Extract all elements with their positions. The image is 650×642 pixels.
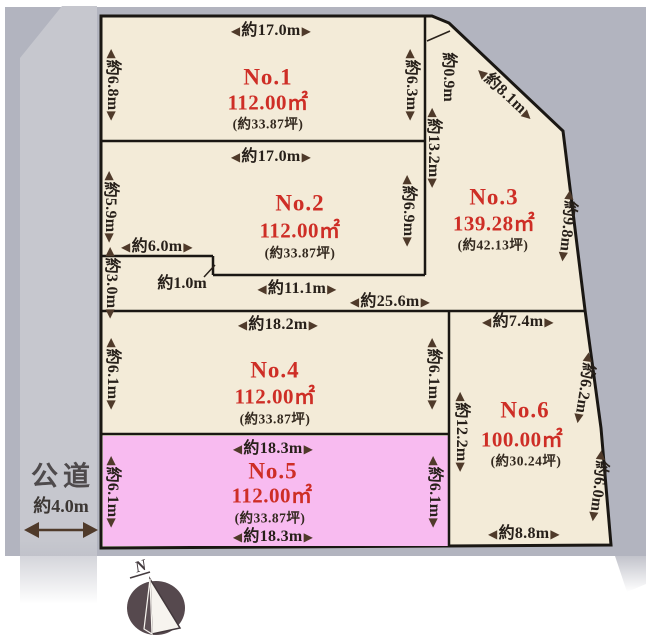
arrow-left-icon: ◀ xyxy=(238,319,248,331)
road-name: 公道 xyxy=(31,464,95,491)
measure-mid-step-offset: 約1.0m xyxy=(157,276,206,292)
plot-no5-tsubo: (約33.87坪) xyxy=(235,511,306,525)
arrow-up-icon: ◀ xyxy=(428,456,440,466)
measure-no1-right: ◀約6.3m▶ xyxy=(403,49,419,121)
measure-no1-top: ◀約17.0m▶ xyxy=(231,23,311,39)
arrow-down-icon: ▶ xyxy=(428,518,440,528)
measure-text: 約6.9m xyxy=(400,186,416,237)
arrow-down-icon: ▶ xyxy=(106,518,118,528)
plot-no2-name: No.2 xyxy=(275,192,324,215)
plot-no3-name: No.3 xyxy=(469,186,518,209)
arrow-down-icon: ▶ xyxy=(402,237,414,247)
measure-text: 約6.0m xyxy=(132,239,183,255)
measure-text: 約7.4m xyxy=(493,314,544,330)
arrow-down-icon: ▶ xyxy=(427,179,439,189)
plot-no3-tsubo: (約42.13坪) xyxy=(458,238,529,252)
measure-text: 約6.1m xyxy=(425,349,441,400)
measure-mid-total-width: ◀約25.6m▶ xyxy=(350,294,430,310)
measure-text: 約17.0m xyxy=(241,23,300,39)
arrow-down-icon: ▶ xyxy=(427,400,439,410)
measure-no4-top: ◀約18.2m▶ xyxy=(238,317,318,333)
arrow-down-icon: ▶ xyxy=(104,233,116,243)
measure-text: 約13.2m xyxy=(425,118,441,177)
measure-text: 約11.1m xyxy=(268,281,326,297)
plot-no2-tsubo: (約33.87坪) xyxy=(265,246,336,260)
arrow-left-icon: ◀ xyxy=(121,241,131,253)
plot-no4-tsubo: (約33.87坪) xyxy=(240,412,311,426)
arrow-left-icon: ◀ xyxy=(231,151,241,163)
plot-no2-area: 112.00㎡ xyxy=(259,221,340,242)
measure-no5-top: ◀約18.3m▶ xyxy=(233,441,313,457)
measure-text: 約18.3m xyxy=(243,529,302,545)
plot-no3-area: 139.28㎡ xyxy=(453,214,535,235)
measure-no6-top: ◀約7.4m▶ xyxy=(482,314,554,330)
arrow-left-icon: ◀ xyxy=(231,25,241,37)
arrow-up-icon: ◀ xyxy=(595,450,608,461)
measure-text: 約18.3m xyxy=(243,441,302,457)
arrow-down-icon: ▶ xyxy=(572,413,585,424)
arrow-right-icon: ▶ xyxy=(183,241,193,253)
measure-no1-left: ◀約6.8m▶ xyxy=(104,49,120,121)
plot-no4-name: No.4 xyxy=(250,359,299,382)
arrow-up-icon: ◀ xyxy=(427,338,439,348)
arrow-up-icon: ◀ xyxy=(427,108,439,118)
land-plot-map: ◀約17.0m▶ ◀約6.8m▶ ◀約6.3m▶ No.1 112.00㎡ (約… xyxy=(0,0,650,642)
arrow-up-icon: ◀ xyxy=(455,392,467,402)
measure-mid-left-width: ◀約6.0m▶ xyxy=(121,239,193,255)
arrow-up-icon: ◀ xyxy=(402,175,414,185)
measure-text: 約12.2m xyxy=(453,402,469,461)
measure-no2-top: ◀約17.0m▶ xyxy=(231,149,311,165)
measure-text: 約3.0m xyxy=(103,258,119,309)
arrow-up-icon: ◀ xyxy=(405,49,417,59)
arrow-down-icon: ▶ xyxy=(106,400,118,410)
measure-no3-top-edge: 約0.9m xyxy=(440,52,456,101)
arrow-right-icon: ▶ xyxy=(550,528,560,540)
measure-text: 約17.0m xyxy=(241,149,300,165)
measure-no3-left: ◀約13.2m▶ xyxy=(425,108,441,188)
road-width: 約4.0m xyxy=(33,497,89,515)
arrow-right-icon: ▶ xyxy=(421,296,431,308)
arrow-down-icon: ▶ xyxy=(588,511,601,522)
measure-no4-left: ◀約6.1m▶ xyxy=(104,338,120,410)
measure-no5-bottom: ◀約18.3m▶ xyxy=(233,529,313,545)
measure-mid-step-height: ◀約3.0m▶ xyxy=(103,247,119,319)
measure-no2-right: ◀約6.9m▶ xyxy=(400,175,416,247)
arrow-up-icon: ◀ xyxy=(582,352,595,363)
arrow-left-icon: ◀ xyxy=(488,528,498,540)
measure-no6-left: ◀約12.2m▶ xyxy=(453,392,469,472)
compass xyxy=(127,572,185,635)
arrow-up-icon: ◀ xyxy=(104,171,116,181)
measure-no5-left: ◀約6.1m▶ xyxy=(104,456,120,528)
arrow-down-icon: ▶ xyxy=(455,463,467,473)
arrow-right-icon: ▶ xyxy=(302,151,312,163)
measure-no5-right: ◀約6.1m▶ xyxy=(426,456,442,528)
arrow-up-icon: ◀ xyxy=(105,247,117,257)
measure-no2-left: ◀約5.9m▶ xyxy=(102,171,118,243)
arrow-down-icon: ▶ xyxy=(557,252,570,263)
arrow-right-icon: ▶ xyxy=(304,443,314,455)
arrow-right-icon: ▶ xyxy=(302,25,312,37)
arrow-down-icon: ▶ xyxy=(405,111,417,121)
arrow-down-icon: ▶ xyxy=(106,111,118,121)
plot-no6-area: 100.00㎡ xyxy=(481,430,563,451)
arrow-up-icon: ◀ xyxy=(106,456,118,466)
arrow-right-icon: ▶ xyxy=(327,283,337,295)
arrow-right-icon: ▶ xyxy=(304,531,314,543)
measure-text: 約25.6m xyxy=(360,294,419,310)
measure-text: 約5.9m xyxy=(102,182,118,233)
arrow-left-icon: ◀ xyxy=(233,531,243,543)
arrow-down-icon: ▶ xyxy=(105,309,117,319)
road-area-fade xyxy=(20,540,97,604)
measure-text: 約6.1m xyxy=(426,467,442,518)
measure-text: 約6.1m xyxy=(104,349,120,400)
measure-text: 約6.1m xyxy=(104,467,120,518)
plot-no4-area: 112.00㎡ xyxy=(234,387,315,408)
plot-no1-name: No.1 xyxy=(243,66,292,89)
measure-no4-right: ◀約6.1m▶ xyxy=(425,338,441,410)
measure-text: 約6.3m xyxy=(403,60,419,111)
measure-mid-inner-width: ◀約11.1m▶ xyxy=(257,281,336,297)
measure-text: 約18.2m xyxy=(248,317,307,333)
plot-no5-name: No.5 xyxy=(248,460,297,483)
arrow-up-icon: ◀ xyxy=(564,190,577,201)
arrow-up-icon: ◀ xyxy=(106,338,118,348)
arrow-left-icon: ◀ xyxy=(350,296,360,308)
arrow-right-icon: ▶ xyxy=(544,316,554,328)
measure-text: 約8.8m xyxy=(499,526,550,542)
plot-no1-tsubo: (約33.87坪) xyxy=(233,117,304,131)
arrow-right-icon: ▶ xyxy=(309,319,319,331)
plot-no6-name: No.6 xyxy=(500,399,549,422)
measure-text: 約6.8m xyxy=(104,60,120,111)
background-shadow-wedge xyxy=(615,556,646,592)
plot-no6-tsubo: (約30.24坪) xyxy=(491,454,562,468)
plot-no1-area: 112.00㎡ xyxy=(227,93,308,114)
arrow-left-icon: ◀ xyxy=(257,283,267,295)
arrow-left-icon: ◀ xyxy=(482,316,492,328)
plot-no5-area: 112.00㎡ xyxy=(231,486,312,507)
measure-no6-bottom: ◀約8.8m▶ xyxy=(488,526,560,542)
arrow-up-icon: ◀ xyxy=(106,49,118,59)
arrow-left-icon: ◀ xyxy=(233,443,243,455)
